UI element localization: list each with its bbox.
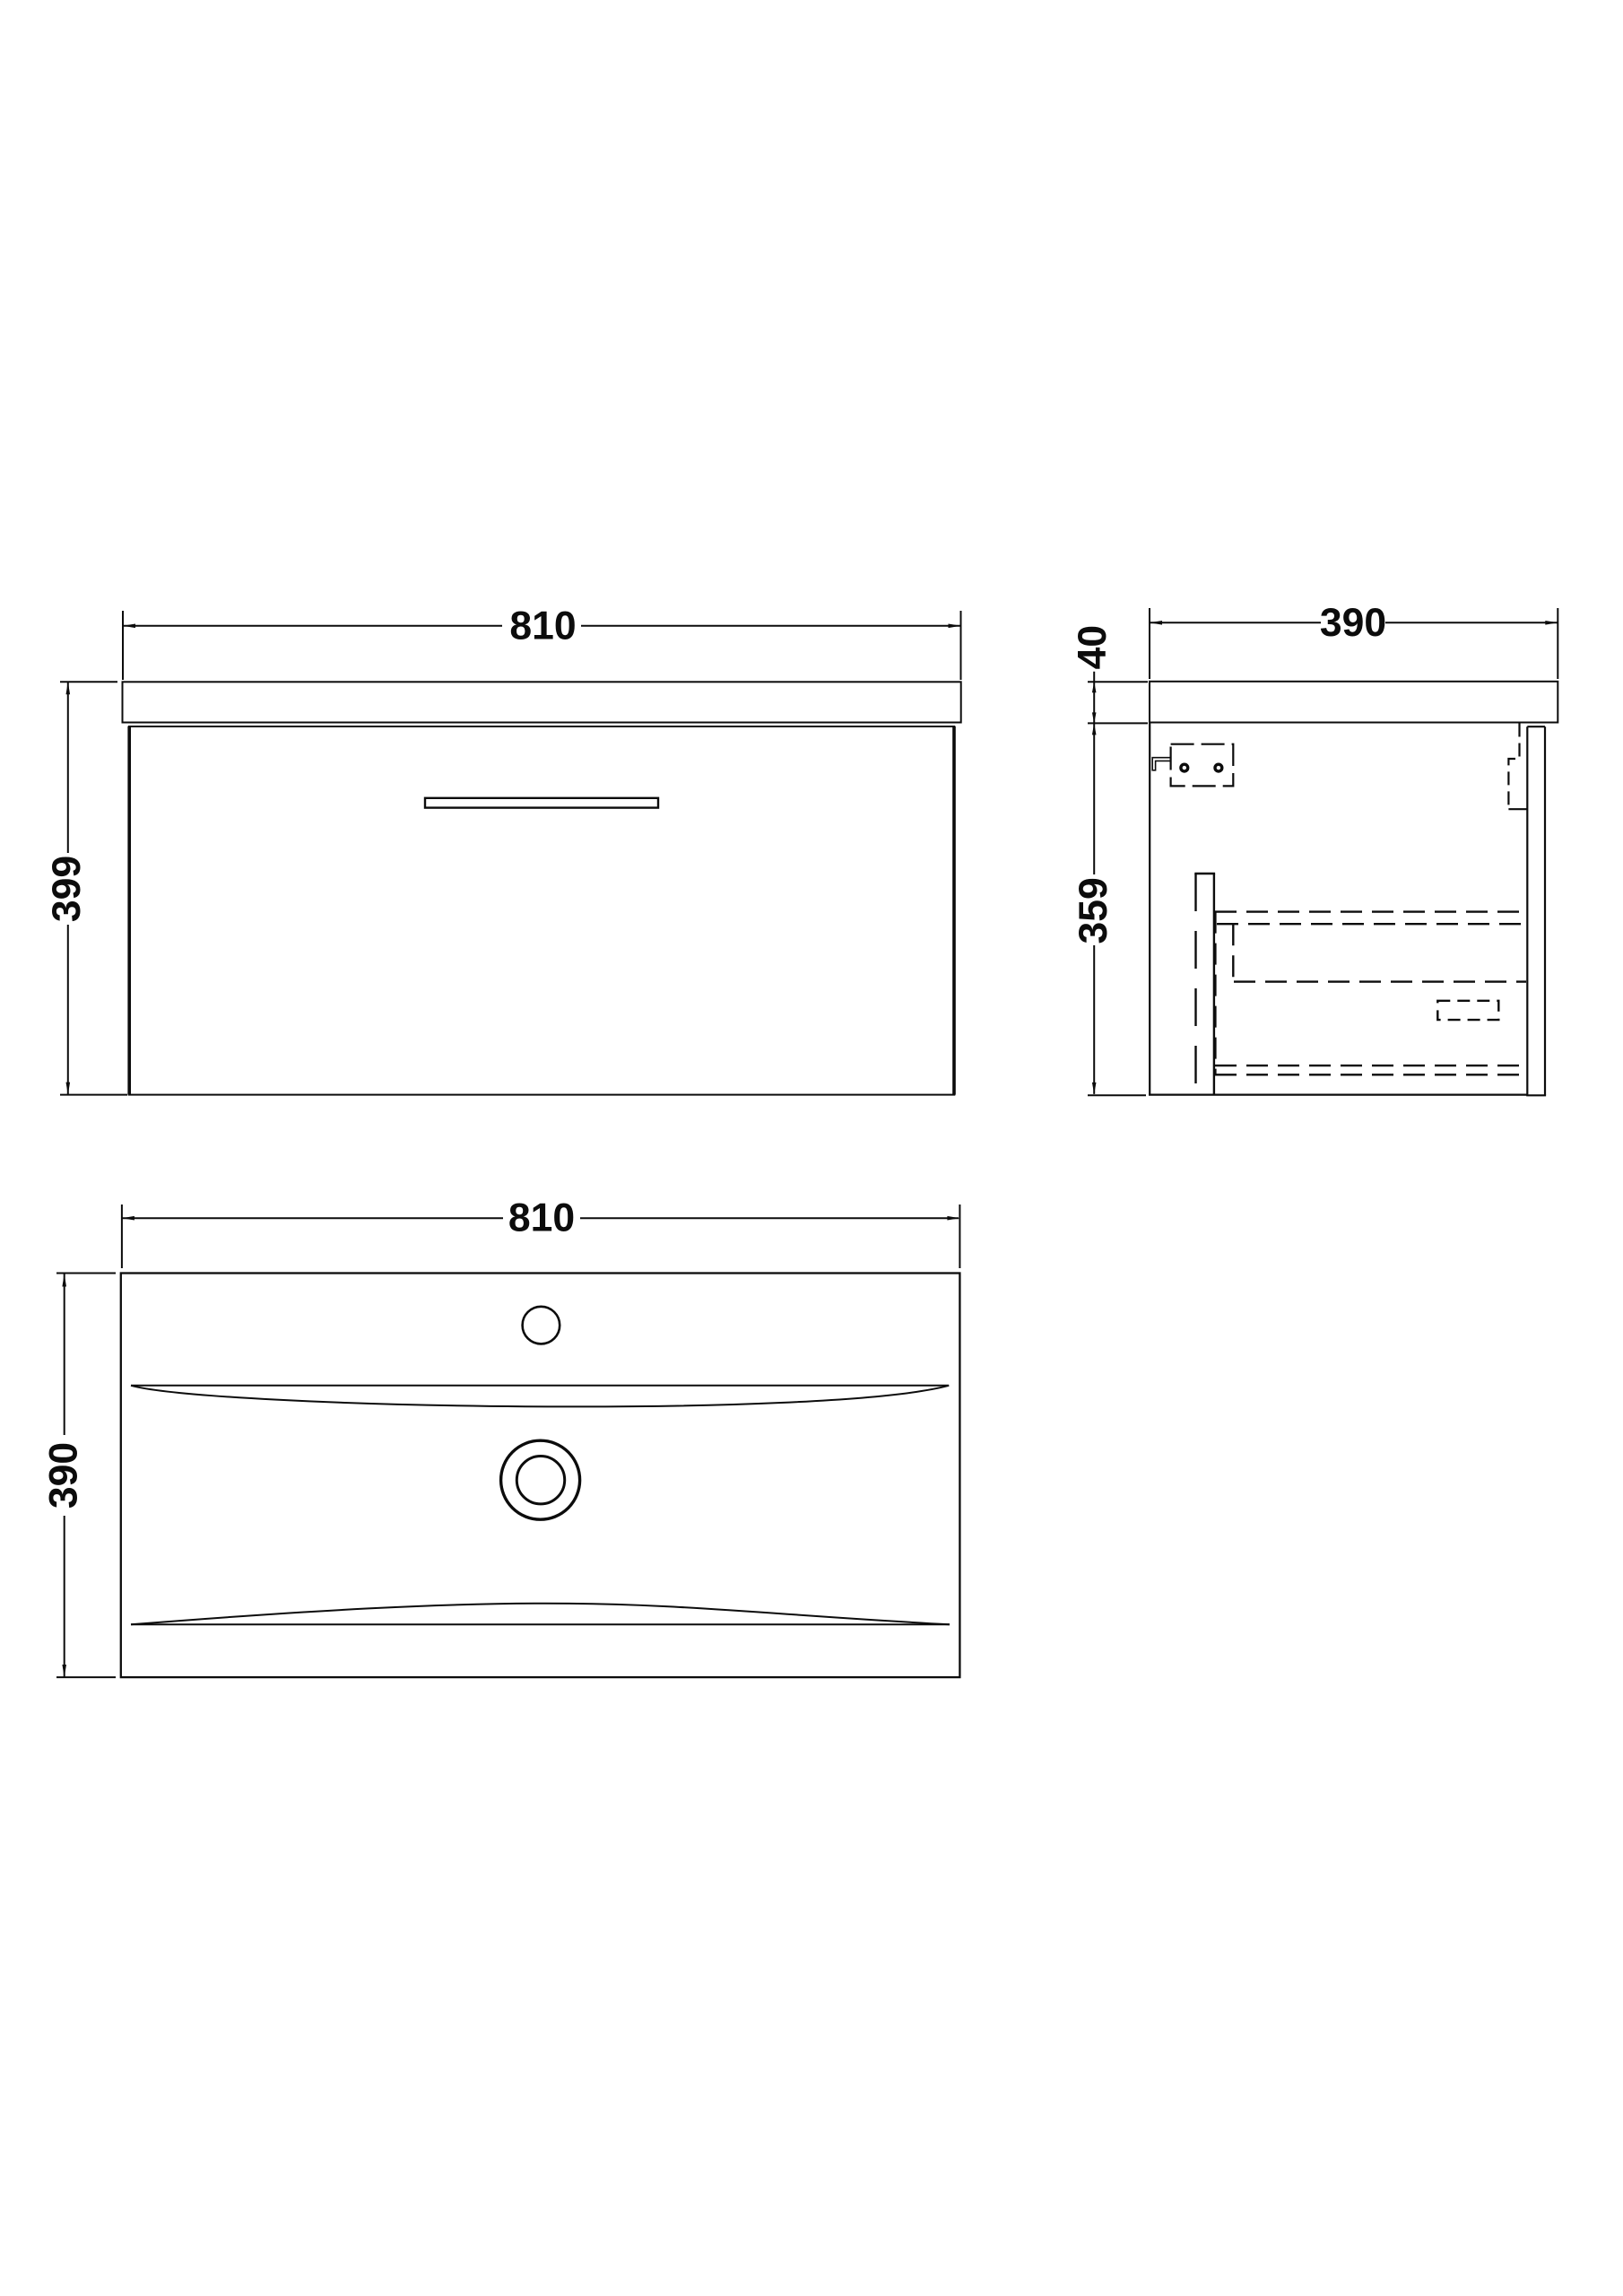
svg-text:399: 399 bbox=[45, 856, 89, 922]
svg-text:390: 390 bbox=[1320, 601, 1386, 645]
svg-text:390: 390 bbox=[42, 1442, 86, 1509]
svg-text:40: 40 bbox=[1071, 625, 1115, 670]
svg-text:810: 810 bbox=[508, 1196, 575, 1240]
svg-text:359: 359 bbox=[1072, 877, 1115, 944]
svg-text:810: 810 bbox=[509, 604, 576, 648]
